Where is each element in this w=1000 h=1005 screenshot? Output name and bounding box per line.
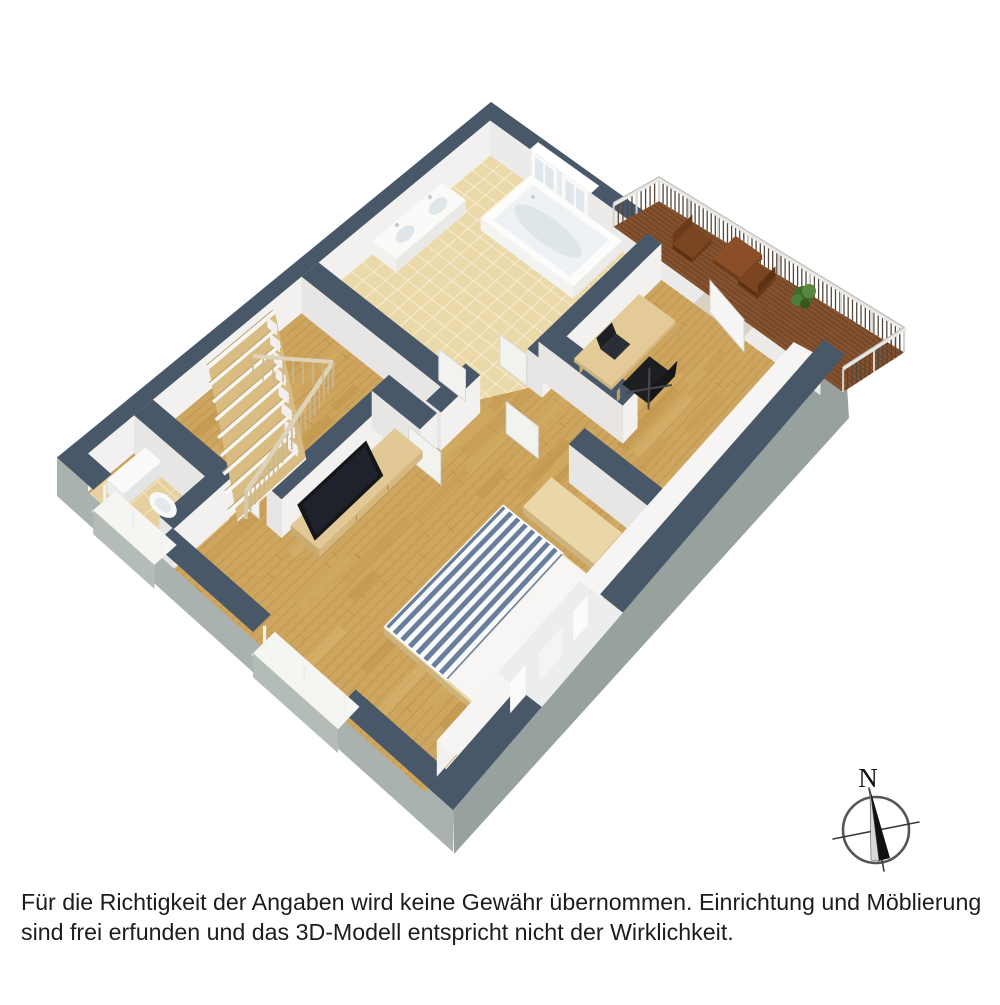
svg-text:Für die Richtigkeit der Angabe: Für die Richtigkeit der Angaben wird kei… xyxy=(21,889,981,915)
svg-text:sind frei erfunden und das 3D-: sind frei erfunden und das 3D-Modell ent… xyxy=(21,919,734,945)
svg-text:N: N xyxy=(858,763,878,793)
